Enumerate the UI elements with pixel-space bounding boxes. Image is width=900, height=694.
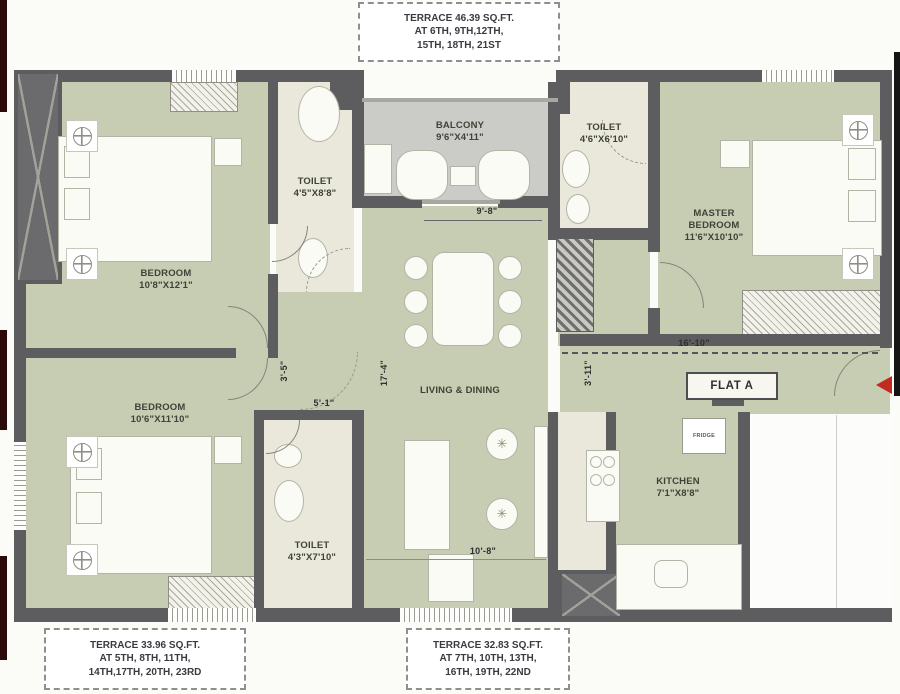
balcony-chair-icon bbox=[478, 150, 530, 200]
room-name: LIVING & DINING bbox=[400, 385, 520, 397]
toilet-bottom-label: TOILET 4'3"X7'10" bbox=[270, 540, 354, 564]
column-icon bbox=[66, 436, 98, 468]
sink-icon bbox=[566, 194, 590, 224]
wardrobe-bedroom-bottom bbox=[168, 576, 256, 610]
room-size: 9'6"X4'11" bbox=[400, 132, 520, 144]
chair-icon bbox=[498, 290, 522, 314]
chair-icon bbox=[404, 256, 428, 280]
note-line: TERRACE 32.83 SQ.FT. bbox=[408, 639, 568, 653]
room-name: TOILET bbox=[270, 540, 354, 552]
room-name: MASTER BEDROOM bbox=[672, 208, 756, 232]
window bbox=[172, 70, 236, 82]
outside-area bbox=[750, 415, 892, 610]
terrace-note-bottom-left: TERRACE 33.96 SQ.FT. AT 5TH, 8TH, 11TH, … bbox=[44, 628, 246, 690]
room-name: BEDROOM bbox=[90, 402, 230, 414]
pillow-icon bbox=[848, 148, 876, 180]
dimension-label: 3'-11" bbox=[583, 349, 593, 397]
side-table-icon bbox=[214, 138, 242, 166]
note-line: 16TH, 19TH, 22ND bbox=[408, 666, 568, 680]
edge-strip bbox=[894, 52, 900, 396]
chair-icon bbox=[498, 324, 522, 348]
dimension-label: 10'-8" bbox=[458, 546, 508, 556]
wall bbox=[254, 410, 264, 608]
toilet-top-left-label: TOILET 4'5"X8'8" bbox=[276, 176, 354, 200]
terrace-note-bottom-right: TERRACE 32.83 SQ.FT. AT 7TH, 10TH, 13TH,… bbox=[406, 628, 570, 690]
room-size: 4'6"X6'10" bbox=[560, 134, 648, 146]
balcony-label: BALCONY 9'6"X4'11" bbox=[400, 120, 520, 144]
toilet-icon bbox=[274, 480, 304, 522]
balcony-table-icon bbox=[450, 166, 476, 186]
dimension-line bbox=[424, 220, 542, 221]
burner-icon bbox=[603, 474, 615, 486]
elevator-shaft-icon bbox=[14, 70, 62, 284]
column-icon bbox=[66, 248, 98, 280]
window bbox=[762, 70, 834, 82]
side-table-icon bbox=[720, 140, 750, 168]
window bbox=[14, 442, 26, 530]
wall bbox=[352, 410, 364, 608]
plant-icon: ✳ bbox=[486, 428, 518, 460]
dimension-dashed-line bbox=[562, 352, 878, 354]
room-name: KITCHEN bbox=[636, 476, 720, 488]
dimension-label: 9'-8" bbox=[462, 206, 512, 216]
edge-strip bbox=[0, 0, 7, 112]
column-icon bbox=[66, 544, 98, 576]
toilet-icon bbox=[562, 150, 590, 188]
note-line: AT 6TH, 9TH,12TH, bbox=[360, 25, 558, 39]
duct-icon bbox=[556, 238, 594, 332]
flat-name-badge: FLAT A bbox=[686, 372, 778, 400]
side-table-icon bbox=[214, 436, 242, 464]
planter-icon bbox=[364, 144, 392, 194]
staircase-shaft-icon bbox=[558, 570, 624, 620]
chair-icon bbox=[404, 290, 428, 314]
toilet-top-right-label: TOILET 4'6"X6'10" bbox=[560, 122, 648, 146]
room-name: BEDROOM bbox=[96, 268, 236, 280]
dimension-label: 16'-10" bbox=[664, 338, 724, 348]
burner-icon bbox=[603, 456, 615, 468]
note-line: 14TH,17TH, 20TH, 23RD bbox=[46, 666, 244, 680]
cabinet-icon bbox=[428, 554, 474, 602]
note-line: TERRACE 46.39 SQ.FT. bbox=[360, 12, 558, 26]
bedroom-bottom-label: BEDROOM 10'6"X11'10" bbox=[90, 402, 230, 426]
pillow-icon bbox=[64, 188, 90, 220]
room-size: 10'6"X11'10" bbox=[90, 414, 230, 426]
wall bbox=[556, 70, 892, 82]
balcony-railing bbox=[362, 98, 558, 102]
room-size: 10'8"X12'1" bbox=[96, 280, 236, 292]
wall bbox=[548, 412, 558, 608]
edge-strip bbox=[0, 556, 7, 660]
plant-icon: ✳ bbox=[486, 498, 518, 530]
living-dining-label: LIVING & DINING bbox=[400, 385, 520, 397]
room-size: 11'6"X10'10" bbox=[672, 232, 756, 244]
terrace-note-top: TERRACE 46.39 SQ.FT. AT 6TH, 9TH,12TH, 1… bbox=[358, 2, 560, 62]
window bbox=[400, 608, 512, 622]
wall bbox=[262, 410, 364, 420]
wall bbox=[268, 82, 278, 224]
burner-icon bbox=[590, 456, 602, 468]
room-name: BALCONY bbox=[400, 120, 520, 132]
edge-strip bbox=[0, 330, 7, 430]
note-line: AT 5TH, 8TH, 11TH, bbox=[46, 652, 244, 666]
dimension-label: 17'-4" bbox=[379, 349, 389, 397]
dimension-line bbox=[366, 559, 546, 560]
column-icon bbox=[842, 114, 874, 146]
wall bbox=[268, 274, 278, 358]
floor-plan: ✳ ✳ FRIDGE BEDROOM 10'8"X12'1" TOILET 4'… bbox=[0, 0, 900, 694]
master-bedroom-label: MASTER BEDROOM 11'6"X10'10" bbox=[672, 208, 756, 244]
room-name: TOILET bbox=[276, 176, 354, 188]
wall bbox=[24, 348, 236, 358]
kitchen-label: KITCHEN 7'1"X8'8" bbox=[636, 476, 720, 500]
bedroom-top-label: BEDROOM 10'8"X12'1" bbox=[96, 268, 236, 292]
wardrobe-master bbox=[742, 290, 882, 336]
room-size: 4'3"X7'10" bbox=[270, 552, 354, 564]
note-line: 15TH, 18TH, 21ST bbox=[360, 39, 558, 53]
note-line: AT 7TH, 10TH, 13TH, bbox=[408, 652, 568, 666]
chair-icon bbox=[404, 324, 428, 348]
room-name: TOILET bbox=[560, 122, 648, 134]
sliding-door bbox=[422, 200, 500, 204]
fridge-icon: FRIDGE bbox=[682, 418, 726, 454]
sofa-icon bbox=[404, 440, 450, 550]
tv-unit-icon bbox=[534, 426, 548, 558]
wall bbox=[560, 334, 892, 346]
pillow-icon bbox=[848, 190, 876, 222]
dimension-label: 3'-5" bbox=[279, 349, 289, 393]
note-line: TERRACE 33.96 SQ.FT. bbox=[46, 639, 244, 653]
window bbox=[168, 608, 256, 622]
burner-icon bbox=[590, 474, 602, 486]
room-size: 4'5"X8'8" bbox=[276, 188, 354, 200]
kitchen-sink-icon bbox=[654, 560, 688, 588]
dining-table-icon bbox=[432, 252, 494, 346]
outside-line bbox=[836, 415, 837, 610]
dimension-label: 5'-1" bbox=[302, 398, 346, 408]
column-icon bbox=[842, 248, 874, 280]
wall bbox=[648, 82, 660, 252]
bathtub-icon bbox=[298, 86, 340, 142]
entrance-arrow-icon bbox=[876, 376, 892, 394]
room-size: 7'1"X8'8" bbox=[636, 488, 720, 500]
balcony-chair-icon bbox=[396, 150, 448, 200]
pillow-icon bbox=[76, 492, 102, 524]
chair-icon bbox=[498, 256, 522, 280]
wall bbox=[548, 82, 560, 240]
wardrobe-bedroom-top bbox=[170, 82, 238, 112]
column-icon bbox=[66, 120, 98, 152]
